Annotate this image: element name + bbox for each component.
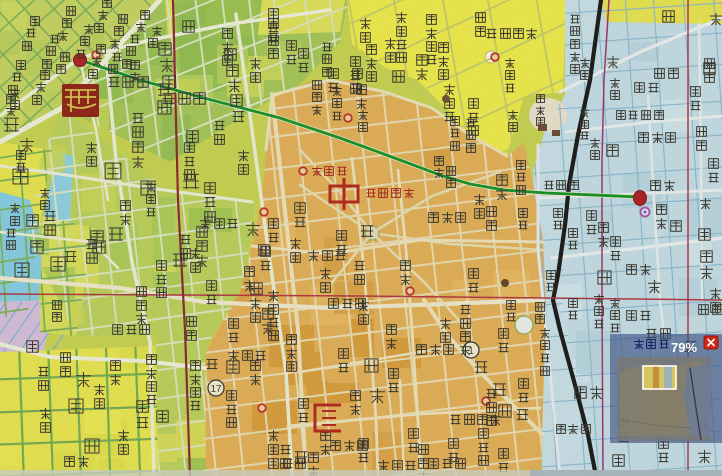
svg-text:79%: 79% xyxy=(671,340,697,355)
